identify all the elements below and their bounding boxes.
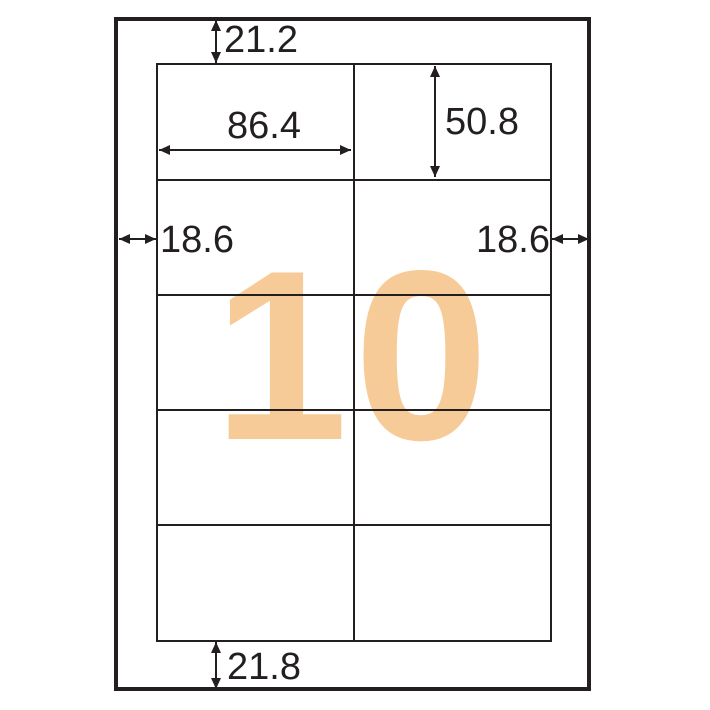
top-margin-arrow [215, 20, 217, 63]
grid-row-divider-3 [158, 409, 550, 411]
left-margin-arrow [119, 238, 156, 240]
label-height-arrow [434, 66, 436, 177]
label-height-value: 50.8 [445, 103, 519, 141]
grid-row-divider-4 [158, 524, 550, 526]
label-width-arrow [159, 149, 351, 151]
label-layout-diagram: 10 21.2 86.4 50.8 18.6 18.6 21.8 [0, 0, 710, 710]
left-margin-value: 18.6 [160, 221, 234, 259]
label-width-value: 86.4 [227, 107, 301, 145]
grid-row-divider-2 [158, 294, 550, 296]
grid-row-divider-1 [158, 179, 550, 181]
bottom-margin-value: 21.8 [227, 648, 301, 686]
bottom-margin-arrow [215, 642, 217, 689]
grid-column-divider [353, 65, 355, 640]
right-margin-arrow [552, 238, 589, 240]
top-margin-value: 21.2 [224, 21, 298, 59]
right-margin-value: 18.6 [476, 221, 550, 259]
